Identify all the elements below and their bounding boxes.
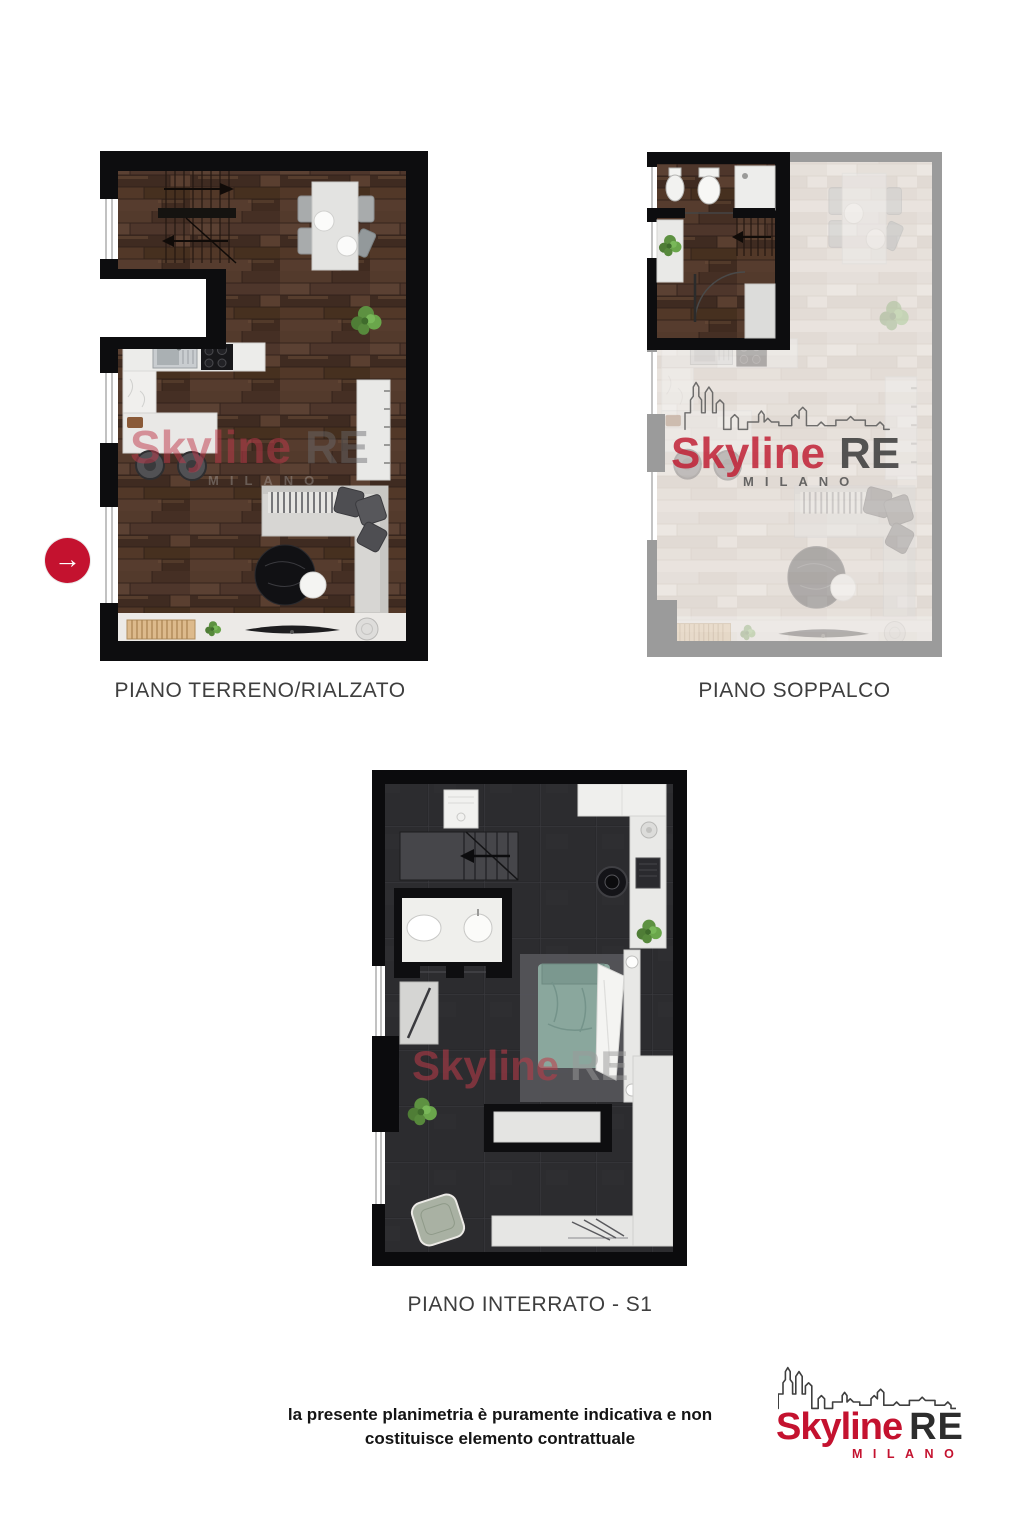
exterior-notch [100,269,226,349]
floor-mirror [400,982,438,1044]
logo-suffix: RE [909,1408,964,1446]
logo-city: MILANO [776,1447,1021,1461]
svg-text:Skyline: Skyline [130,421,291,473]
logo-brand: Skyline [776,1408,902,1446]
svg-text:RE: RE [839,429,900,478]
svg-text:MILANO: MILANO [743,474,860,489]
disclaimer-line1: la presente planimetria è puramente indi… [162,1403,838,1427]
disclaimer: la presente planimetria è puramente indi… [162,1403,838,1451]
floorplan-piano-soppalco: Skyline RE MILANO [647,152,942,657]
skyline-re-logo: Skyline RE MILANO [776,1362,1021,1461]
arrow-right-icon: → [54,537,81,582]
sink [407,915,441,941]
floorplan-piano-terreno: Skyline RE MILANO [100,151,428,661]
cabinet [745,284,775,338]
bidet [666,175,684,201]
console-niche [484,1104,612,1152]
planimetry-sheet: → Skyline RE MILANO [0,0,1024,1536]
toilet [698,176,720,204]
label-piano-soppalco: PIANO SOPPALCO [647,678,942,704]
label-piano-terreno: PIANO TERRENO/RIALZATO [90,678,430,704]
laptop [636,858,660,888]
pillow [542,964,604,984]
mezzanine [647,152,790,350]
sink [464,914,492,942]
entrance-arrow-marker: → [45,538,90,583]
svg-text:Skyline: Skyline [412,1042,559,1089]
watermark: Skyline RE [412,1042,628,1089]
boiler-unit [444,790,478,828]
svg-text:RE: RE [305,421,369,473]
basement-stairs [400,832,518,880]
floorplan-piano-interrato: Skyline RE [372,770,687,1266]
svg-text:RE: RE [570,1042,628,1089]
svg-text:Skyline: Skyline [671,429,825,478]
label-piano-interrato: PIANO INTERRATO - S1 [370,1292,690,1318]
svg-text:MILANO: MILANO [208,473,325,488]
disclaimer-line2: costituisce elemento contrattuale [162,1427,838,1451]
interior-wall [385,1036,399,1132]
bathroom [394,888,512,978]
shower [735,166,775,210]
milan-skyline-icon [778,1362,956,1410]
